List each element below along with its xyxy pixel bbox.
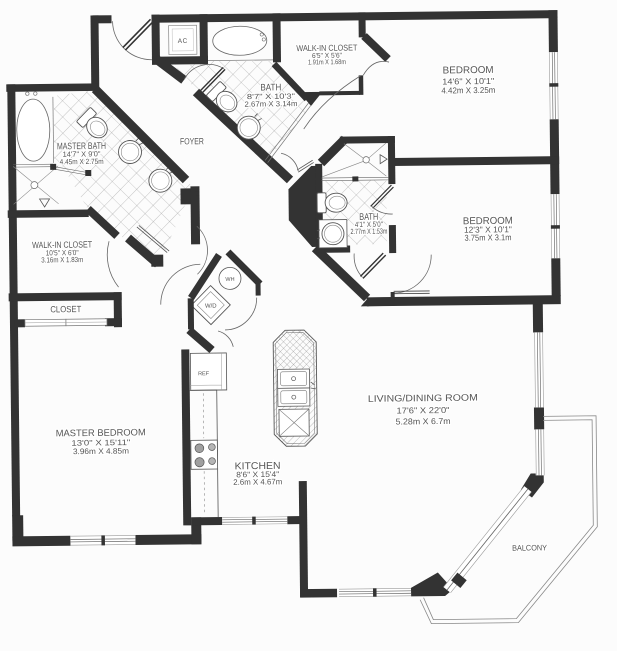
svg-text:3.96m X 4.85m: 3.96m X 4.85m	[73, 447, 129, 457]
svg-text:2.77m X 1.53m: 2.77m X 1.53m	[350, 227, 387, 236]
svg-text:4.42m X 3.25m: 4.42m X 3.25m	[441, 85, 495, 96]
svg-text:AC: AC	[178, 38, 188, 45]
svg-text:BALCONY: BALCONY	[512, 543, 548, 552]
svg-text:3.16m X 1.83m: 3.16m X 1.83m	[41, 255, 83, 264]
svg-text:5.28m X 6.7m: 5.28m X 6.7m	[396, 416, 451, 427]
svg-text:2.67m X 3.14m: 2.67m X 3.14m	[244, 99, 297, 109]
svg-text:WH: WH	[225, 277, 234, 283]
svg-text:FOYER: FOYER	[180, 136, 204, 146]
svg-text:1.91m X 1.68m: 1.91m X 1.68m	[308, 59, 346, 66]
svg-text:2.6m X 4.67m: 2.6m X 4.67m	[233, 477, 282, 487]
svg-text:CLOSET: CLOSET	[50, 304, 82, 314]
svg-text:4.45m X 2.75m: 4.45m X 2.75m	[60, 157, 104, 166]
svg-text:W/D: W/D	[205, 304, 217, 310]
svg-text:17'6" X 22'0": 17'6" X 22'0"	[396, 405, 449, 416]
svg-text:3.75m X 3.1m: 3.75m X 3.1m	[464, 232, 511, 243]
svg-text:BEDROOM: BEDROOM	[443, 65, 494, 77]
svg-text:REF: REF	[198, 371, 210, 377]
svg-text:LIVING/DINING ROOM: LIVING/DINING ROOM	[368, 393, 478, 405]
svg-text:WALK-IN CLOSET: WALK-IN CLOSET	[296, 42, 357, 53]
